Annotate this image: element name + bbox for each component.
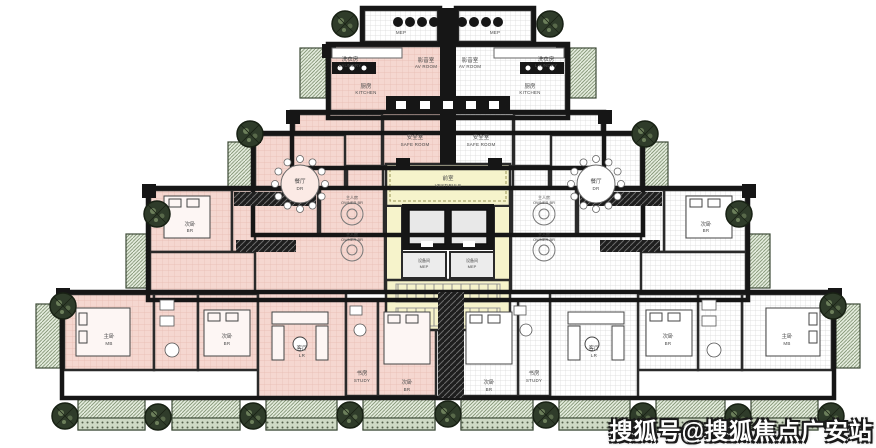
label-vestibule-zh: 前室 bbox=[442, 174, 454, 182]
label-master-right-en: MB bbox=[783, 341, 790, 346]
label-core-mep-right-zh: 设备间 bbox=[466, 257, 478, 263]
label-core-mep-left-en: MEP bbox=[420, 264, 429, 269]
label-living-right-zh: 客厅 bbox=[588, 344, 600, 352]
label-living-left-en: LR bbox=[299, 353, 306, 358]
label-vestibule-en: VESTIBULE bbox=[435, 183, 462, 188]
label-master-right-zh: 主卧 bbox=[781, 332, 793, 340]
label-study-left-en: STUDY bbox=[354, 378, 370, 383]
label-living-left-zh: 客厅 bbox=[296, 344, 308, 352]
label-wing-br-left-en: BR bbox=[187, 228, 194, 233]
label-br3-right-en: BR bbox=[486, 387, 493, 392]
elevator-shafts bbox=[402, 204, 494, 250]
label-wing-br-right-zh: 次卧 bbox=[700, 220, 712, 228]
label-safe-left-en: SAFE ROOM bbox=[401, 142, 430, 147]
label-laundry-left-en: LAUNDRY bbox=[339, 63, 362, 68]
label-br3-left-en: BR bbox=[404, 387, 411, 392]
label-core-mep-left-zh: 设备间 bbox=[418, 257, 430, 263]
label-laundry-right-zh: 洗衣房 bbox=[538, 55, 555, 63]
label-study-right-zh: 书房 bbox=[528, 369, 540, 377]
label-mep-top-left: MEP bbox=[396, 30, 406, 35]
label-av-left-zh: 影音室 bbox=[418, 56, 435, 64]
label-living-right-en: LR bbox=[591, 353, 598, 358]
label-br2-right-zh: 次卧 bbox=[662, 332, 674, 340]
label-wing-br-left-zh: 次卧 bbox=[184, 220, 196, 228]
label-br3-left-zh: 次卧 bbox=[401, 378, 413, 386]
watermark: 搜狐号@搜狐焦点广安站 bbox=[610, 412, 873, 446]
label-laundry-right-en: LAUNDRY bbox=[535, 63, 558, 68]
label-av-right-en: AV ROOM bbox=[459, 64, 481, 69]
floor-plan-drawing: MEP MEP 洗衣房 LAUNDRY 洗衣房 LAUNDRY 厨房 KITCH… bbox=[0, 0, 876, 448]
label-kitchen-right-en: KITCHEN bbox=[519, 90, 540, 95]
label-kitchen-left-en: KITCHEN bbox=[355, 90, 376, 95]
label-dining-right-en: DR bbox=[593, 186, 600, 191]
label-owner-right1-en: OWNER BR bbox=[533, 200, 555, 205]
label-br2-right-en: BR bbox=[665, 341, 672, 346]
label-br2-left-zh: 次卧 bbox=[221, 332, 233, 340]
label-kitchen-right-zh: 厨房 bbox=[524, 82, 536, 90]
label-master-left-en: MB bbox=[105, 341, 112, 346]
floor-plan-page: MEP MEP 洗衣房 LAUNDRY 洗衣房 LAUNDRY 厨房 KITCH… bbox=[0, 0, 876, 448]
label-owner-left2-en: OWNER BR bbox=[341, 237, 363, 242]
label-dining-right-zh: 餐厅 bbox=[590, 177, 602, 185]
label-dining-left-en: DR bbox=[297, 186, 304, 191]
label-wing-br-right-en: BR bbox=[703, 228, 710, 233]
label-av-right-zh: 影音室 bbox=[462, 56, 479, 64]
label-mep-top-right: MEP bbox=[490, 30, 500, 35]
label-study-left-zh: 书房 bbox=[356, 369, 368, 377]
label-av-left-en: AV ROOM bbox=[415, 64, 437, 69]
label-safe-right-en: SAFE ROOM bbox=[467, 142, 496, 147]
label-master-left-zh: 主卧 bbox=[103, 332, 115, 340]
label-br3-right-zh: 次卧 bbox=[483, 378, 495, 386]
label-study-right-en: STUDY bbox=[526, 378, 542, 383]
label-kitchen-left-zh: 厨房 bbox=[360, 82, 372, 90]
label-owner-left1-en: OWNER BR bbox=[341, 200, 363, 205]
label-br2-left-en: BR bbox=[224, 341, 231, 346]
label-safe-right-zh: 安全室 bbox=[473, 133, 490, 141]
label-owner-right2-en: OWNER BR bbox=[533, 237, 555, 242]
label-safe-left-zh: 安全室 bbox=[407, 133, 424, 141]
label-dining-left-zh: 餐厅 bbox=[294, 177, 306, 185]
label-laundry-left-zh: 洗衣房 bbox=[342, 55, 359, 63]
label-core-mep-right-en: MEP bbox=[468, 264, 477, 269]
